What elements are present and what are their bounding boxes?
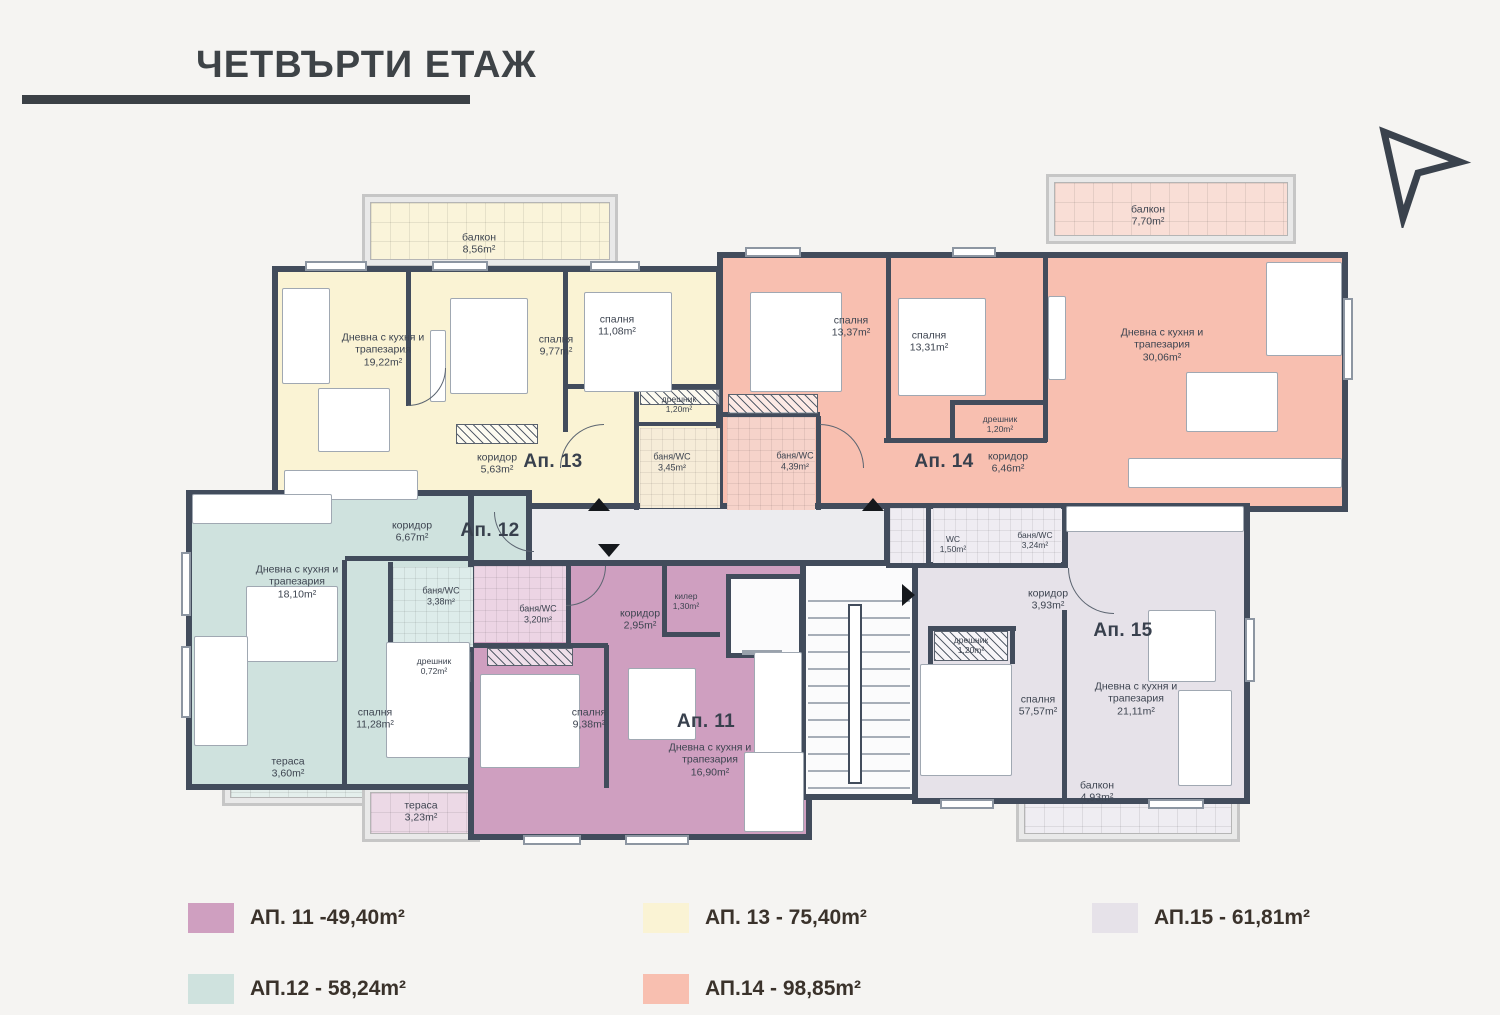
kitchen-counter xyxy=(1066,506,1244,532)
room-label: коридор3,93m² xyxy=(989,588,1107,613)
room-label: коридор2,95m² xyxy=(581,608,699,633)
room-label: коридор6,67m² xyxy=(353,520,471,545)
sofa-furniture xyxy=(282,288,330,384)
legend-swatch-ap11 xyxy=(188,903,234,933)
elevator xyxy=(726,574,804,658)
sofa-furniture xyxy=(1266,262,1342,356)
window xyxy=(952,247,996,257)
direction-arrow-up xyxy=(862,498,884,511)
room-label: спалня9,38m² xyxy=(530,707,648,732)
apartment-label-13: Ап. 13 xyxy=(523,451,582,473)
wall-segment xyxy=(950,400,955,442)
room-label: спалня11,08m² xyxy=(558,314,676,339)
legend-label: АП.12 - 58,24m² xyxy=(250,977,406,1001)
room-label: балкон7,70m² xyxy=(1089,204,1207,229)
window xyxy=(305,261,367,271)
room-label: баня/WC3,24m² xyxy=(995,530,1075,550)
wall-segment xyxy=(884,438,1047,443)
kitchen-counter xyxy=(1128,458,1342,488)
legend-label: АП. 11 -49,40m² xyxy=(250,906,405,930)
legend-item-ap12: АП.12 - 58,24m² xyxy=(188,974,406,1004)
legend-swatch-ap15 xyxy=(1092,903,1138,933)
apartment-label-11: Ап. 11 xyxy=(677,711,735,733)
room-label: Дневна с кухня и трапезария16,90m² xyxy=(651,741,769,778)
wardrobe-hatch xyxy=(456,424,538,444)
legend-swatch-ap12 xyxy=(188,974,234,1004)
room-label: килер1,30m² xyxy=(646,591,726,611)
common-corridor-zone xyxy=(526,503,918,568)
page-title: ЧЕТВЪРТИ ЕТАЖ xyxy=(196,44,537,87)
title-underline xyxy=(22,95,470,104)
sofa-furniture xyxy=(194,636,248,746)
legend-item-ap11: АП. 11 -49,40m² xyxy=(188,903,405,933)
apartment-label-12: Ап. 12 xyxy=(460,520,519,542)
wall-segment xyxy=(634,422,722,426)
room-label: баня/WC3,45m² xyxy=(613,451,731,472)
window xyxy=(523,835,581,845)
legend-item-ap15: АП.15 - 61,81m² xyxy=(1092,903,1310,933)
window xyxy=(1148,799,1204,809)
window xyxy=(181,646,191,718)
table-furniture xyxy=(1148,610,1216,682)
wall-segment xyxy=(662,632,720,637)
floor-plan-page: { "title": "ЧЕТВЪРТИ ЕТАЖ", "apartments"… xyxy=(0,0,1500,1015)
room-label: WC1,50m² xyxy=(913,534,993,554)
window xyxy=(432,261,488,271)
room-label: тераса3,23m² xyxy=(362,800,480,825)
legend-label: АП.14 - 98,85m² xyxy=(705,977,861,1001)
room-label: Дневна с кухня и трапезария19,22m² xyxy=(324,331,442,368)
bed-furniture xyxy=(750,292,842,392)
window xyxy=(1245,618,1255,682)
wardrobe-furniture xyxy=(1048,296,1066,380)
cursor-arrow-icon xyxy=(1372,118,1472,228)
window xyxy=(1343,298,1353,380)
window xyxy=(181,552,191,616)
room-label: дрешник1,20m² xyxy=(960,414,1040,434)
room-label: Дневна с кухня и трапезария18,10m² xyxy=(238,563,356,600)
window xyxy=(745,247,801,257)
legend-swatch-ap13 xyxy=(643,903,689,933)
direction-arrow-down xyxy=(598,544,620,557)
wall-segment xyxy=(886,563,1066,568)
wardrobe-hatch xyxy=(728,394,818,414)
room-label: баня/WC4,39m² xyxy=(736,450,854,471)
legend-label: АП.15 - 61,81m² xyxy=(1154,906,1310,930)
apartment-label-14: Ап. 14 xyxy=(914,451,973,473)
room-label: дрешник0,72m² xyxy=(394,656,474,676)
window xyxy=(625,835,689,845)
table-furniture xyxy=(318,388,390,452)
room-label: спалня11,28m² xyxy=(316,707,434,732)
legend-item-ap13: АП. 13 - 75,40m² xyxy=(643,903,867,933)
wardrobe-hatch xyxy=(487,648,573,666)
wall-segment xyxy=(950,400,1045,405)
wall-segment xyxy=(345,556,472,561)
window xyxy=(590,261,640,271)
dining-table-furniture xyxy=(1186,372,1278,432)
room-label: баня/WC3,20m² xyxy=(479,603,597,624)
room-label: балкон4,93m² xyxy=(1038,780,1156,805)
room-label: балкон8,56m² xyxy=(420,232,538,257)
stair-rail xyxy=(848,604,862,784)
bathroom-tiles-ap12 xyxy=(393,567,473,647)
room-label: Дневна с кухня и трапезария21,11m² xyxy=(1077,680,1195,717)
apartment-label-15: Ап. 15 xyxy=(1093,620,1152,642)
bed-furniture xyxy=(920,664,1012,776)
legend-label: АП. 13 - 75,40m² xyxy=(705,906,867,930)
direction-arrow-up xyxy=(588,498,610,511)
room-label: Дневна с кухня и трапезария30,06m² xyxy=(1103,326,1221,363)
kitchen-counter xyxy=(192,494,332,524)
legend-swatch-ap14 xyxy=(643,974,689,1004)
direction-arrow-right xyxy=(902,584,915,606)
window xyxy=(940,799,994,809)
legend-item-ap14: АП.14 - 98,85m² xyxy=(643,974,861,1004)
room-label: дрешник1,20m² xyxy=(639,394,719,414)
room-label: спалня13,31m² xyxy=(870,330,988,355)
room-label: тераса3,60m² xyxy=(229,756,347,781)
room-label: дрешник1,20m² xyxy=(931,635,1011,655)
